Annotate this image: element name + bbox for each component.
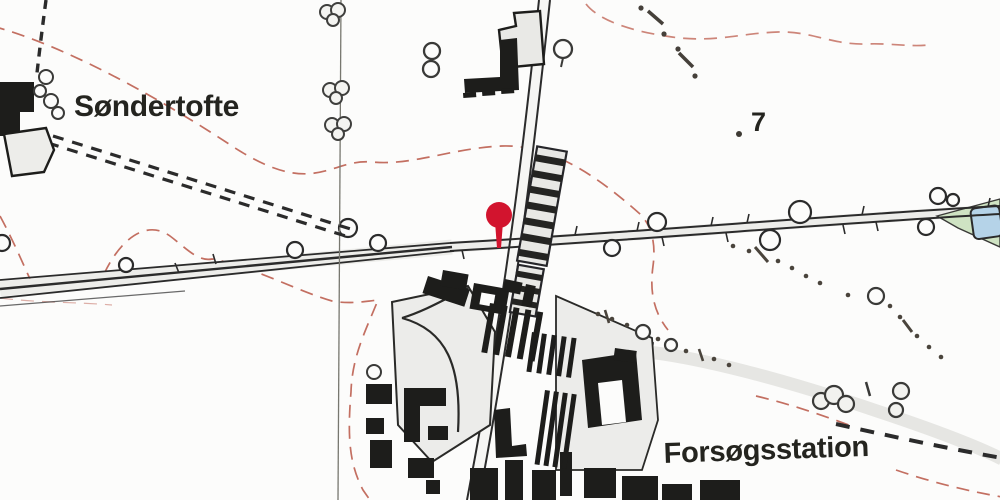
tree-icon — [370, 235, 386, 251]
tree-icon — [893, 383, 909, 399]
tree-icon — [423, 61, 439, 77]
tree-icon — [930, 188, 946, 204]
pond — [970, 205, 1000, 240]
building — [622, 476, 658, 500]
bush-icon — [838, 396, 854, 412]
tree-icon — [760, 230, 780, 250]
settlement-label: Søndertofte — [74, 90, 239, 123]
building — [366, 418, 384, 434]
elevation-dot — [736, 131, 742, 137]
tree-icon — [665, 339, 677, 351]
tree-icon — [554, 40, 572, 58]
building — [470, 468, 498, 500]
bush-icon — [332, 128, 344, 140]
tree-icon — [367, 365, 381, 379]
tree-icon — [636, 325, 650, 339]
tree-icon — [0, 235, 10, 251]
tree-icon — [287, 242, 303, 258]
building — [426, 480, 440, 494]
tree-icon — [889, 403, 903, 417]
map-canvas[interactable]: 7 Søndertofte Forsøgsstation — [0, 0, 1000, 500]
building — [700, 480, 740, 500]
building — [584, 468, 616, 498]
tree-icon — [424, 43, 440, 59]
building-courtyard — [598, 380, 626, 425]
pin-head — [486, 202, 512, 228]
tree-icon — [918, 219, 934, 235]
building — [408, 458, 434, 478]
tree-icon — [119, 258, 133, 272]
building — [428, 426, 448, 440]
tree-icon — [39, 70, 53, 84]
garden-dash — [501, 88, 514, 94]
building — [662, 484, 692, 500]
map-viewport[interactable]: 7 Søndertofte Forsøgsstation — [0, 0, 1000, 500]
tree-icon — [789, 201, 811, 223]
building — [366, 384, 392, 404]
garden-dash — [463, 92, 476, 98]
tree-icon — [52, 107, 64, 119]
garden-dash — [482, 90, 495, 96]
pond-shape — [970, 205, 1000, 240]
tree-icon — [34, 85, 46, 97]
building — [532, 470, 556, 500]
tree-icon — [947, 194, 959, 206]
bush-icon — [330, 92, 342, 104]
tree-icon — [44, 94, 58, 108]
building — [404, 406, 420, 442]
farm-courtyard — [4, 128, 54, 176]
building — [505, 460, 523, 500]
elevation-label: 7 — [751, 107, 766, 137]
tree-icon — [868, 288, 884, 304]
bush-icon — [327, 14, 339, 26]
tree-icon — [604, 240, 620, 256]
building — [370, 440, 392, 468]
building — [404, 388, 446, 406]
tree-icon — [648, 213, 666, 231]
